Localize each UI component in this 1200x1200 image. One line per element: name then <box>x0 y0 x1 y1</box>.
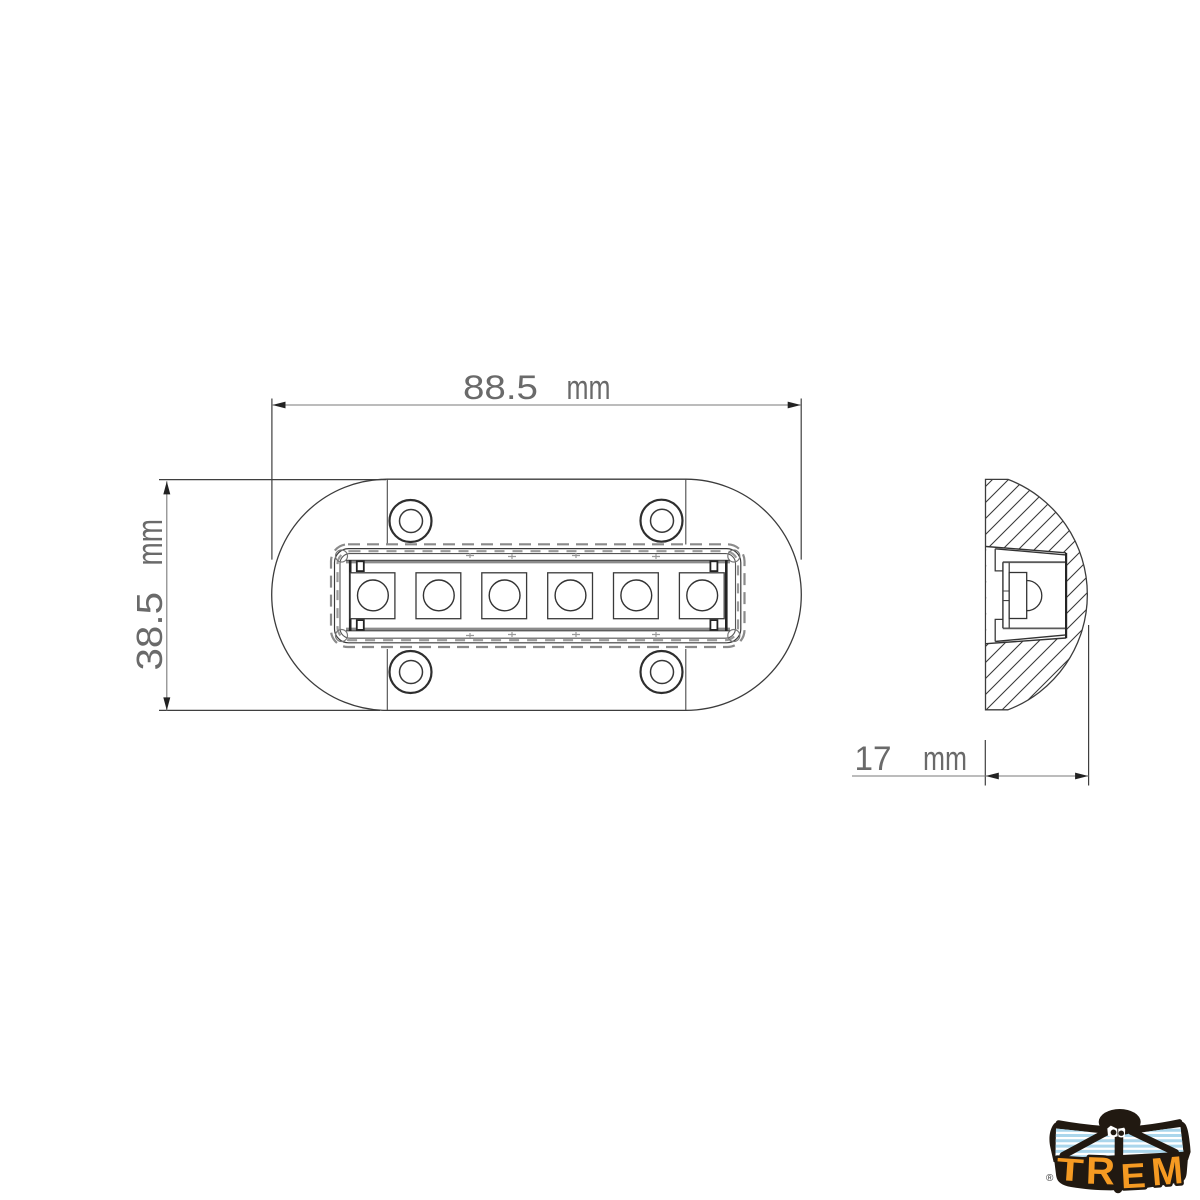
svg-text:M: M <box>1150 1149 1185 1195</box>
svg-text:T: T <box>1055 1151 1085 1189</box>
svg-text:17: 17 <box>855 740 892 778</box>
svg-text:®: ® <box>1046 1173 1054 1184</box>
svg-text:mm: mm <box>129 519 170 566</box>
svg-text:88.5: 88.5 <box>463 369 538 407</box>
svg-text:R: R <box>1085 1150 1116 1194</box>
svg-text:mm: mm <box>567 369 611 407</box>
svg-text:E: E <box>1120 1156 1147 1196</box>
svg-text:38.5: 38.5 <box>129 592 170 671</box>
svg-text:mm: mm <box>923 740 967 778</box>
